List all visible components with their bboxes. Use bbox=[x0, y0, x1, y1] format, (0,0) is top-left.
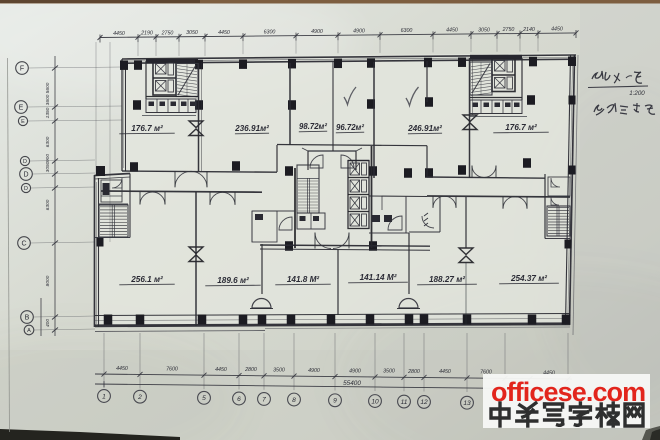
svg-text:6300: 6300 bbox=[45, 136, 51, 147]
svg-text:6: 6 bbox=[237, 396, 241, 403]
svg-text:4900: 4900 bbox=[349, 368, 361, 374]
svg-text:3050: 3050 bbox=[45, 161, 51, 172]
svg-text:2750: 2750 bbox=[161, 30, 174, 36]
svg-text:4450: 4450 bbox=[218, 30, 230, 36]
svg-text:2: 2 bbox=[137, 394, 142, 401]
svg-text:4450: 4450 bbox=[439, 369, 451, 375]
svg-text:141.8 М²: 141.8 М² bbox=[287, 275, 320, 284]
svg-text:4450: 4450 bbox=[113, 31, 125, 37]
svg-text:4900: 4900 bbox=[353, 29, 365, 35]
svg-text:55400: 55400 bbox=[343, 380, 361, 387]
svg-text:E: E bbox=[19, 105, 24, 112]
svg-text:11: 11 bbox=[401, 399, 408, 406]
svg-text:246.91м²: 246.91м² bbox=[407, 124, 442, 133]
svg-text:1350: 1350 bbox=[45, 107, 51, 118]
svg-text:2800: 2800 bbox=[244, 367, 257, 373]
svg-text:4450: 4450 bbox=[116, 366, 128, 372]
svg-text:5: 5 bbox=[202, 395, 206, 402]
svg-text:8000: 8000 bbox=[45, 275, 51, 286]
svg-text:2190: 2190 bbox=[140, 31, 153, 37]
svg-text:13: 13 bbox=[463, 400, 471, 407]
svg-text:2800: 2800 bbox=[407, 369, 420, 375]
svg-text:176.7 м²: 176.7 м² bbox=[505, 123, 537, 132]
svg-text:3500: 3500 bbox=[273, 367, 285, 373]
svg-text:188.27 м²: 188.27 м² bbox=[429, 275, 465, 284]
svg-text:2750: 2750 bbox=[502, 27, 515, 33]
svg-text:3600: 3600 bbox=[45, 94, 51, 105]
svg-text:C: C bbox=[21, 241, 26, 248]
svg-text:officese.com: officese.com bbox=[491, 377, 645, 407]
svg-text:B: B bbox=[25, 315, 30, 322]
svg-text:189.6 м²: 189.6 м² bbox=[217, 276, 249, 285]
svg-text:3050: 3050 bbox=[478, 27, 490, 33]
svg-text:3050: 3050 bbox=[186, 30, 198, 36]
svg-text:A: A bbox=[27, 328, 31, 334]
svg-text:254.37 м²: 254.37 м² bbox=[510, 274, 547, 283]
svg-text:4900: 4900 bbox=[308, 368, 320, 374]
svg-text:6300: 6300 bbox=[264, 29, 276, 35]
svg-text:4450: 4450 bbox=[446, 28, 458, 34]
svg-text:D: D bbox=[24, 186, 28, 192]
svg-text:E: E bbox=[21, 119, 25, 125]
svg-text:141.14 М²: 141.14 М² bbox=[360, 273, 397, 282]
svg-text:D: D bbox=[23, 172, 28, 179]
svg-text:8: 8 bbox=[292, 397, 296, 404]
svg-text:2140: 2140 bbox=[522, 27, 535, 33]
svg-text:9: 9 bbox=[333, 398, 337, 405]
svg-text:256.1 м²: 256.1 м² bbox=[130, 275, 163, 284]
svg-text:7600: 7600 bbox=[166, 366, 178, 372]
svg-text:F: F bbox=[20, 66, 24, 73]
svg-text:D: D bbox=[23, 159, 27, 165]
svg-text:7: 7 bbox=[262, 396, 266, 403]
svg-text:3500: 3500 bbox=[383, 369, 395, 375]
svg-text:96.72м²: 96.72м² bbox=[336, 123, 364, 132]
svg-text:1: 1 bbox=[102, 393, 106, 400]
svg-text:4450: 4450 bbox=[551, 27, 563, 33]
svg-text:236.91м²: 236.91м² bbox=[234, 124, 269, 133]
svg-text:1:200: 1:200 bbox=[629, 90, 645, 97]
svg-text:5600: 5600 bbox=[45, 82, 51, 93]
svg-text:12: 12 bbox=[420, 399, 428, 406]
svg-text:98.72м²: 98.72м² bbox=[299, 122, 327, 131]
svg-text:6300: 6300 bbox=[45, 199, 51, 210]
svg-text:176.7 м²: 176.7 м² bbox=[131, 124, 163, 133]
svg-text:400: 400 bbox=[45, 319, 51, 327]
svg-text:4900: 4900 bbox=[311, 29, 323, 35]
svg-text:10: 10 bbox=[371, 398, 379, 405]
svg-text:4450: 4450 bbox=[215, 367, 227, 373]
svg-text:6300: 6300 bbox=[401, 28, 413, 34]
